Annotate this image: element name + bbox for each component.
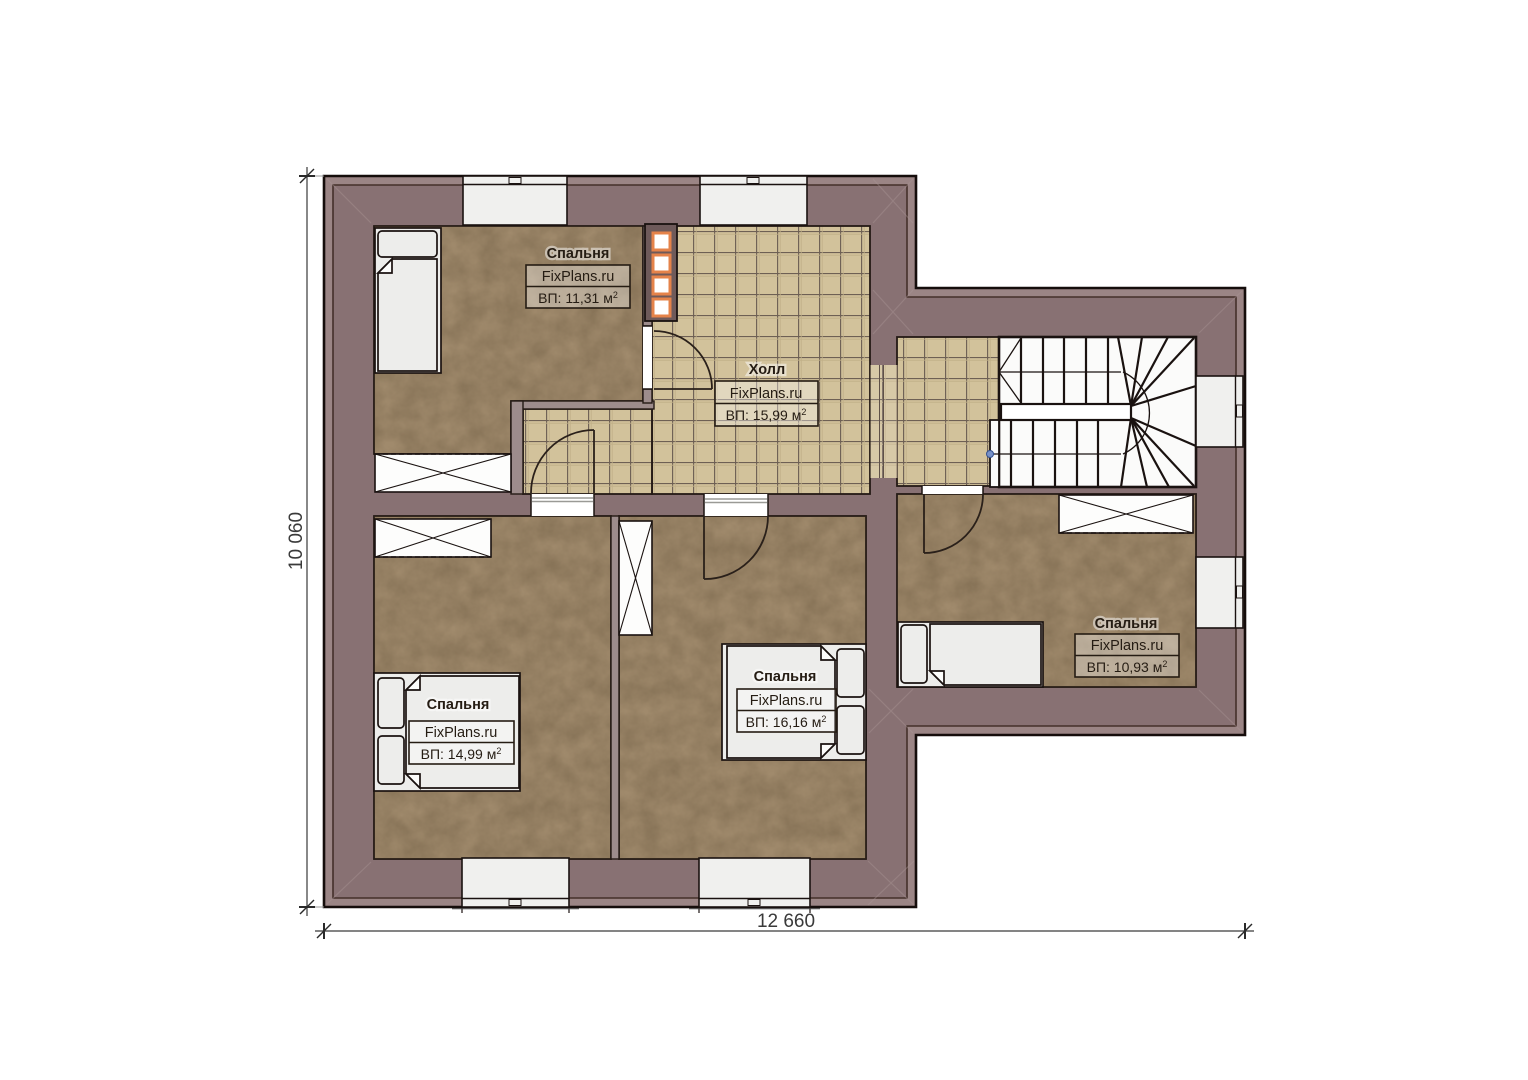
svg-text:Спальня: Спальня	[754, 669, 817, 685]
svg-text:ВП: 16,16 м2: ВП: 16,16 м2	[746, 714, 827, 730]
svg-text:10 060: 10 060	[286, 512, 307, 570]
svg-text:ВП: 10,93 м2: ВП: 10,93 м2	[1087, 659, 1168, 675]
svg-text:12 660: 12 660	[757, 911, 815, 932]
svg-text:Спальня: Спальня	[427, 697, 490, 713]
svg-text:ВП: 14,99 м2: ВП: 14,99 м2	[421, 746, 502, 762]
svg-text:ВП: 11,31 м2: ВП: 11,31 м2	[538, 290, 618, 306]
svg-text:Спальня: Спальня	[1095, 616, 1158, 632]
svg-text:FixPlans.ru: FixPlans.ru	[542, 269, 615, 285]
svg-text:FixPlans.ru: FixPlans.ru	[425, 725, 498, 741]
svg-text:FixPlans.ru: FixPlans.ru	[1091, 638, 1164, 654]
svg-text:Спальня: Спальня	[547, 246, 610, 262]
svg-text:FixPlans.ru: FixPlans.ru	[730, 386, 803, 402]
svg-text:Холл: Холл	[749, 362, 785, 378]
svg-text:FixPlans.ru: FixPlans.ru	[750, 693, 823, 709]
svg-text:ВП: 15,99 м2: ВП: 15,99 м2	[726, 407, 807, 423]
